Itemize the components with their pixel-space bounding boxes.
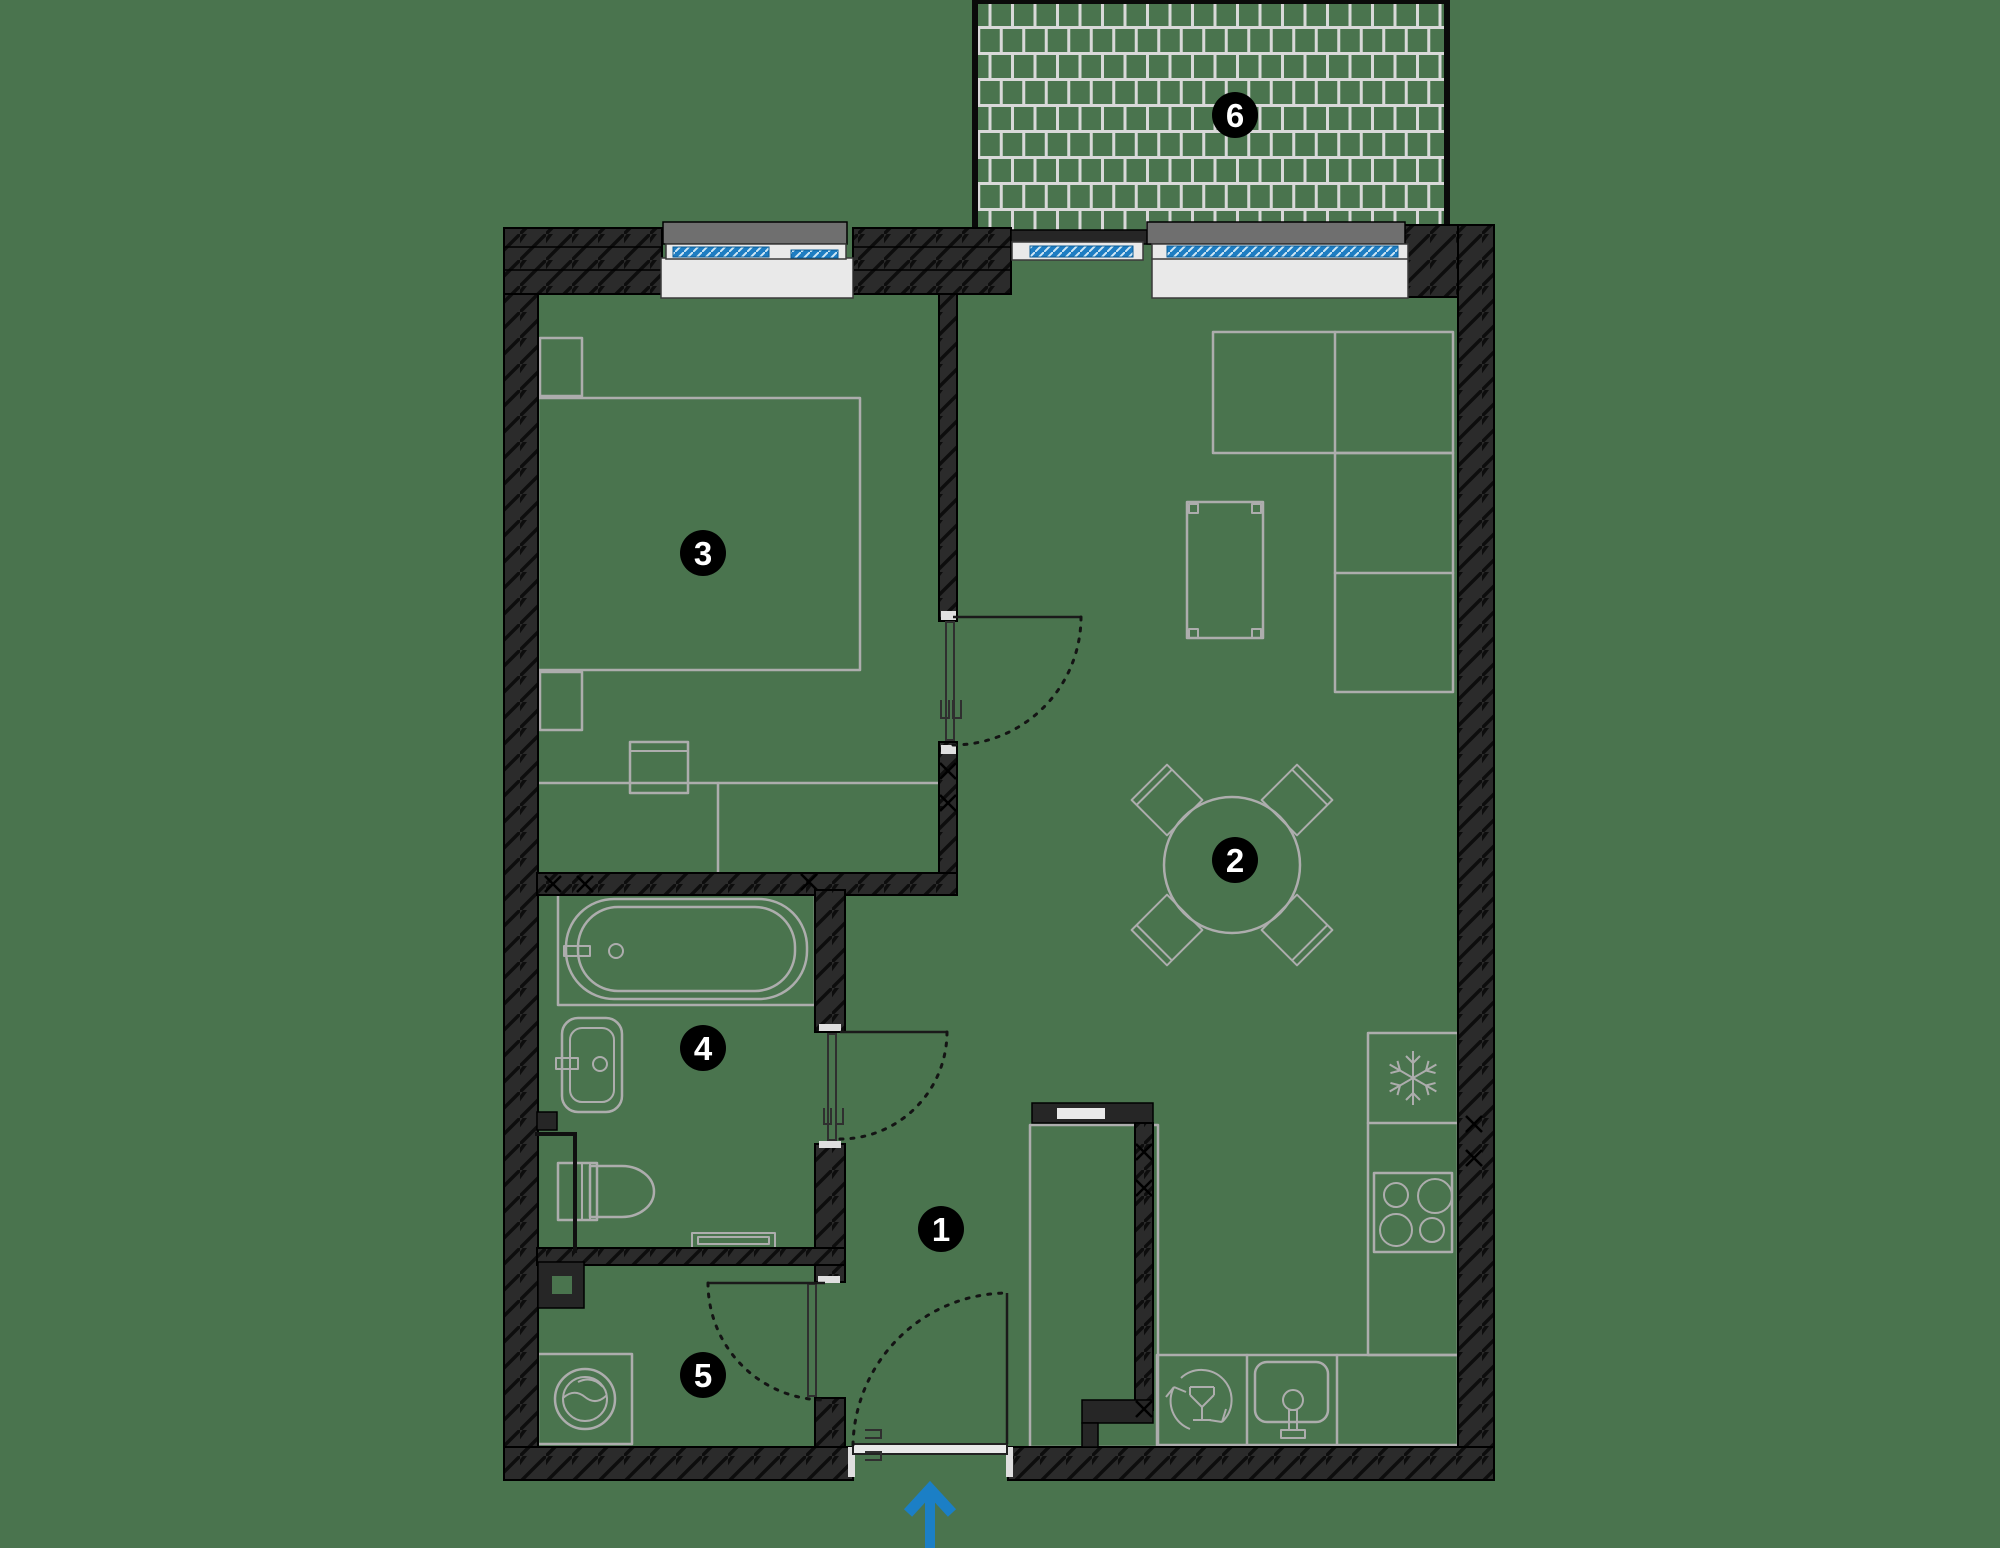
door-jamb [819, 1141, 841, 1148]
wall-exterior-bottom-left [504, 1447, 853, 1480]
svg-text:4: 4 [694, 1030, 713, 1067]
window-sill [661, 258, 853, 298]
wall-bathroom-right-upper [815, 890, 845, 1032]
wall-closet-right [1135, 1123, 1153, 1410]
wall-exterior-top-left [504, 228, 662, 294]
balcony-left-rail [972, 0, 978, 230]
wall-exterior-bottom-right [1008, 1447, 1494, 1480]
svg-text:3: 3 [694, 535, 712, 572]
svg-text:2: 2 [1226, 842, 1244, 879]
window-glass-pane [673, 247, 769, 257]
room-marker-4[interactable]: 4 [680, 1025, 726, 1071]
closet-top-inset [1057, 1108, 1105, 1119]
svg-text:5: 5 [694, 1357, 712, 1394]
balcony-tiled-floor [972, 0, 1450, 230]
room-marker-1[interactable]: 1 [918, 1206, 964, 1252]
wall-bedroom-bottom [537, 873, 957, 895]
balcony-top-rail [972, 0, 1450, 4]
window-glass-pane [1167, 246, 1398, 257]
balcony-right-rail [1444, 0, 1450, 230]
wall-exterior-right [1458, 225, 1494, 1480]
door-jamb [819, 1024, 841, 1031]
bedroom-window [661, 222, 853, 298]
window-header [1147, 222, 1405, 244]
room-marker-3[interactable]: 3 [680, 530, 726, 576]
floor-plan-drawing: 1 2 3 4 5 6 [0, 0, 2000, 1548]
living-room-window-small [1012, 242, 1143, 260]
living-room-window-large [1147, 222, 1408, 298]
room-marker-2[interactable]: 2 [1212, 837, 1258, 883]
window-header [663, 222, 847, 244]
wall-bedroom-living-upper [939, 294, 957, 621]
window-glass-pane [1030, 246, 1133, 257]
door-jamb [941, 611, 956, 620]
window-glass-pane [791, 250, 838, 258]
svg-text:1: 1 [932, 1211, 950, 1248]
room-marker-6[interactable]: 6 [1212, 92, 1258, 138]
wall-exterior-left [504, 228, 538, 1480]
wall-exterior-top-middle [853, 228, 1011, 294]
duct-shaft-hole [552, 1276, 572, 1294]
balcony [972, 0, 1450, 230]
wall-utility-door-jamb [815, 1398, 845, 1447]
wall-exterior-top-right [1403, 225, 1460, 297]
room-marker-5[interactable]: 5 [680, 1352, 726, 1398]
wall-stub [537, 1112, 557, 1130]
svg-text:6: 6 [1226, 97, 1244, 134]
wall-closet-bottom-l2 [1082, 1423, 1098, 1447]
floor-plan-canvas: 1 2 3 4 5 6 [0, 0, 2000, 1548]
window-sill [1152, 258, 1408, 298]
